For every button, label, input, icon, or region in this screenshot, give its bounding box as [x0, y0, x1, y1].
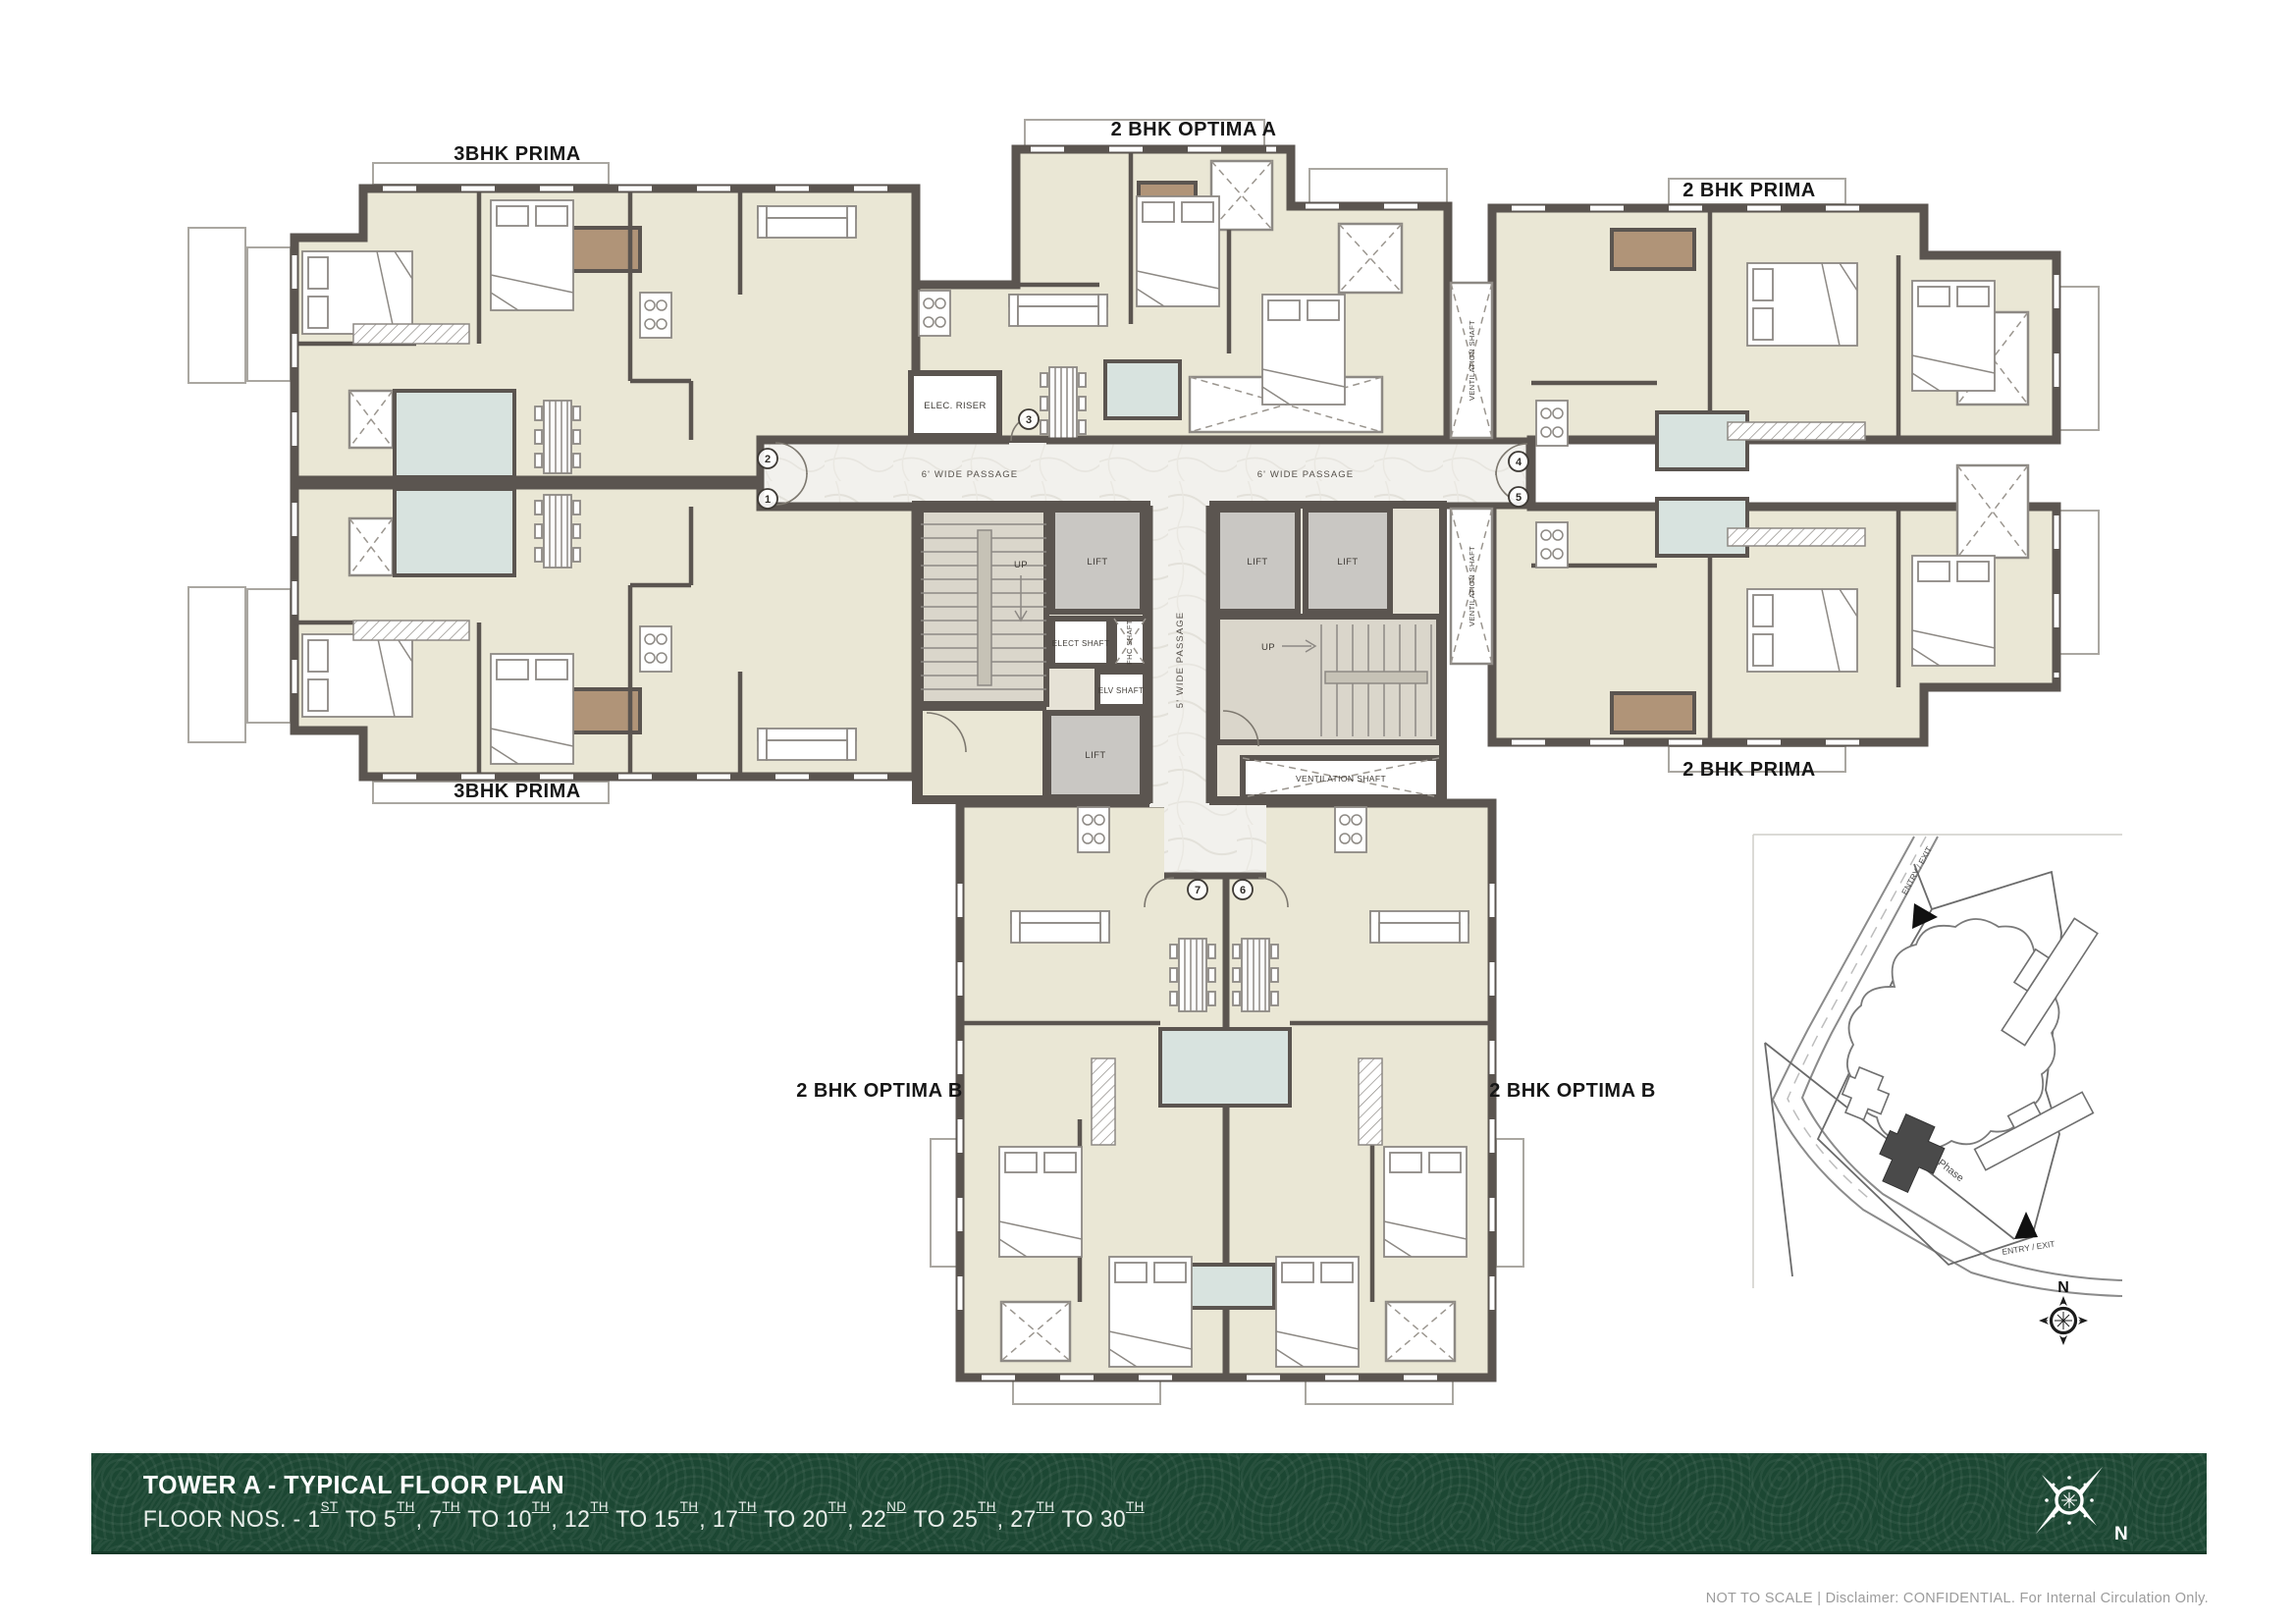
svg-text:6: 6 — [1240, 885, 1246, 896]
passage-6-label: 6' WIDE PASSAGE — [922, 469, 1018, 480]
svg-text:2: 2 — [765, 454, 771, 465]
footer-band: TOWER A - TYPICAL FLOOR PLAN FLOOR NOS. … — [91, 1453, 2207, 1554]
entry-4: 4 — [1509, 452, 1528, 471]
unit-label-3bhk-prima-bottom: 3BHK PRIMA — [454, 781, 580, 802]
passage-6-label: 6' WIDE PASSAGE — [1257, 469, 1354, 480]
floor-plan-drawing: ELEC. RISER — [0, 0, 2296, 1624]
page: ELEC. RISER — [0, 0, 2296, 1624]
top-wing: ELEC. RISER — [911, 120, 1448, 440]
footer-north-label: N — [2114, 1524, 2128, 1544]
svg-text:5: 5 — [1516, 492, 1522, 504]
svg-text:3: 3 — [1026, 414, 1032, 426]
footer-floor-numbers: FLOOR NOS. - 1ST TO 5TH, 7TH TO 10TH, 12… — [143, 1505, 1146, 1534]
up-label: UP — [1261, 642, 1275, 653]
unit-label-3bhk-prima-top: 3BHK PRIMA — [454, 143, 580, 165]
entry-2: 2 — [758, 449, 777, 468]
elec-riser-label: ELEC. RISER — [924, 401, 987, 411]
footnote: NOT TO SCALE | Disclaimer: CONFIDENTIAL.… — [1706, 1591, 2209, 1606]
unit-label-2bhk-prima-bottom: 2 BHK PRIMA — [1682, 759, 1816, 781]
ventilation-shaft-label: VENTILATION SHAFT — [1296, 774, 1386, 784]
ventilation-shaft-label: VENTILATION SHAFT — [1468, 546, 1476, 626]
bottom-wing — [931, 803, 1523, 1404]
lift-label: LIFT — [1085, 750, 1105, 761]
unit-label-2bhk-optima-b-left: 2 BHK OPTIMA B — [796, 1080, 963, 1102]
footer-compass-icon: N — [1999, 1453, 2165, 1554]
elv-shaft-label: ELV SHAFT — [1098, 686, 1145, 695]
unit-label-2bhk-optima-a: 2 BHK OPTIMA A — [1111, 119, 1277, 140]
footer-title: TOWER A - TYPICAL FLOOR PLAN — [143, 1471, 1146, 1500]
entry-1: 1 — [758, 489, 777, 509]
ventilation-shaft-label: VENTILATION SHAFT — [1468, 320, 1476, 401]
unit-label-2bhk-prima-top: 2 BHK PRIMA — [1682, 180, 1816, 201]
elect-shaft-label: ELECT SHAFT — [1052, 639, 1110, 648]
site-map: Existing Completed Phase ENTRY / EXIT EN… — [1753, 835, 2122, 1345]
svg-text:1: 1 — [765, 494, 771, 506]
entry-5: 5 — [1509, 487, 1528, 507]
fhc-shaft-label: FHC SHAFT — [1125, 620, 1134, 665]
lift-label: LIFT — [1087, 557, 1107, 568]
entry-7: 7 — [1188, 880, 1207, 899]
entry-exit-label: ENTRY / EXIT — [2002, 1239, 2056, 1257]
svg-text:4: 4 — [1516, 457, 1522, 468]
right-wing — [1492, 179, 2099, 772]
up-label: UP — [1014, 560, 1028, 570]
svg-text:7: 7 — [1195, 885, 1201, 896]
unit-label-2bhk-optima-b-right: 2 BHK OPTIMA B — [1489, 1080, 1656, 1102]
entry-arrow-icon — [1912, 903, 1938, 929]
footer-text: TOWER A - TYPICAL FLOOR PLAN FLOOR NOS. … — [91, 1471, 1146, 1535]
lift-label: LIFT — [1337, 557, 1358, 568]
svg-text:N: N — [2057, 1279, 2069, 1296]
lift-label: LIFT — [1247, 557, 1267, 568]
entry-3: 3 — [1019, 409, 1039, 429]
passage-5-label: 5' WIDE PASSAGE — [1175, 612, 1186, 708]
entry-6: 6 — [1233, 880, 1253, 899]
